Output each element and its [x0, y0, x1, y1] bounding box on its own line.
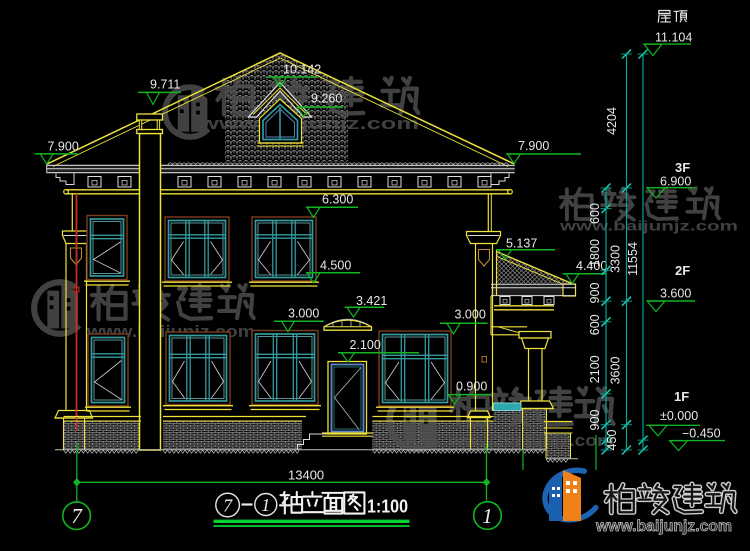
svg-text:1800: 1800 [588, 239, 602, 267]
svg-text:2F: 2F [675, 263, 690, 278]
svg-text:1: 1 [261, 495, 270, 515]
svg-text:9.260: 9.260 [311, 92, 342, 106]
svg-text:13400: 13400 [288, 468, 324, 483]
svg-text:3.000: 3.000 [288, 307, 319, 321]
svg-text:600: 600 [588, 203, 602, 224]
svg-text:5.137: 5.137 [506, 237, 537, 251]
svg-text:4.500: 4.500 [320, 259, 351, 273]
svg-text:7.900: 7.900 [518, 139, 549, 153]
svg-text:3F: 3F [675, 160, 690, 175]
svg-text:900: 900 [588, 410, 602, 431]
svg-text:3.421: 3.421 [356, 294, 387, 308]
svg-text:6.900: 6.900 [660, 175, 691, 189]
svg-text:10.142: 10.142 [283, 63, 321, 77]
svg-text:9.711: 9.711 [150, 78, 180, 92]
svg-text:600: 600 [588, 314, 602, 335]
svg-text:−0.450: −0.450 [682, 427, 721, 441]
svg-text:11554: 11554 [626, 242, 640, 276]
svg-text:3.000: 3.000 [455, 308, 486, 322]
svg-text:450: 450 [605, 430, 619, 451]
svg-text:3300: 3300 [609, 245, 623, 273]
svg-text:0.900: 0.900 [456, 380, 487, 394]
svg-text:7.900: 7.900 [48, 140, 79, 154]
svg-text:1: 1 [482, 504, 493, 528]
svg-text:3.600: 3.600 [660, 287, 691, 301]
svg-text:11.104: 11.104 [655, 31, 692, 45]
svg-text:3600: 3600 [609, 357, 623, 385]
svg-text:1F: 1F [674, 389, 689, 404]
svg-text:7: 7 [223, 496, 233, 516]
svg-text:www.baijunjz.com: www.baijunjz.com [559, 218, 738, 234]
svg-text:2100: 2100 [588, 355, 602, 383]
svg-text:1:100: 1:100 [367, 497, 408, 517]
svg-text:900: 900 [588, 283, 602, 304]
svg-text:7: 7 [71, 504, 83, 528]
svg-text:4204: 4204 [605, 107, 619, 135]
svg-text:www.baijunjz.com: www.baijunjz.com [448, 431, 614, 450]
svg-text:6.300: 6.300 [322, 193, 353, 207]
svg-text:2.100: 2.100 [350, 338, 381, 352]
svg-text:www.baijunjz.com: www.baijunjz.com [595, 518, 732, 535]
svg-text:±0.000: ±0.000 [660, 409, 698, 423]
